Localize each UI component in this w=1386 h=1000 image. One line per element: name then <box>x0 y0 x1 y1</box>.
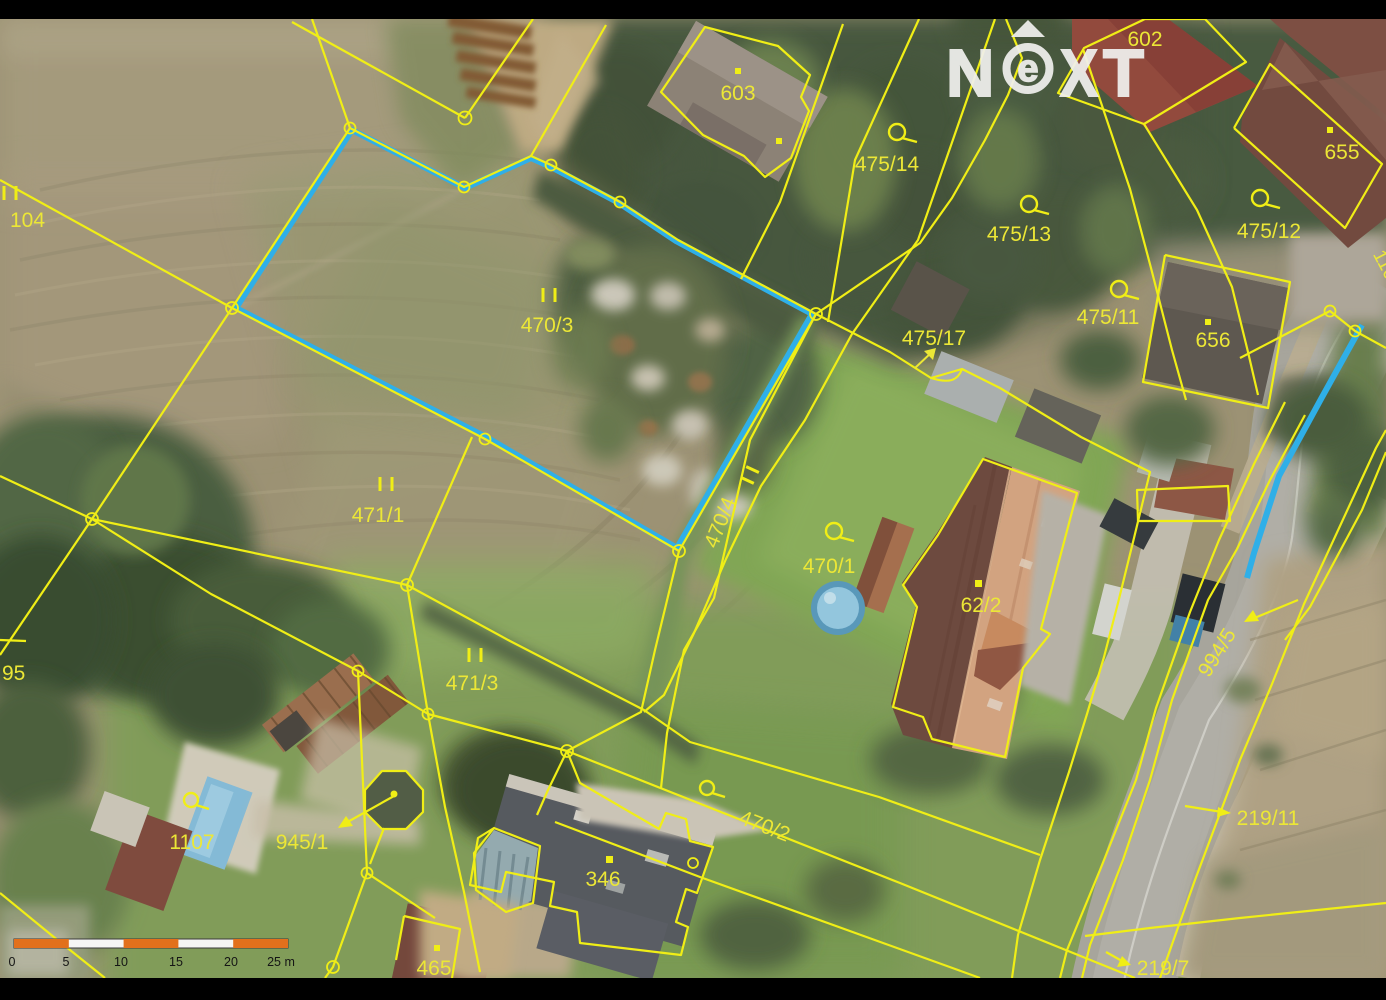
svg-text:20: 20 <box>224 955 238 969</box>
svg-text:25 m: 25 m <box>267 955 295 969</box>
svg-text:5: 5 <box>63 955 70 969</box>
svg-text:471/3: 471/3 <box>446 672 499 695</box>
svg-text:656: 656 <box>1195 329 1230 352</box>
svg-text:X: X <box>1060 37 1098 111</box>
svg-text:62/2: 62/2 <box>961 594 1002 617</box>
svg-text:603: 603 <box>720 82 755 105</box>
svg-text:219/7: 219/7 <box>1137 957 1190 980</box>
svg-text:104: 104 <box>10 209 45 232</box>
svg-text:475/14: 475/14 <box>855 153 920 176</box>
svg-text:655: 655 <box>1324 141 1359 164</box>
svg-text:470/1: 470/1 <box>803 555 856 578</box>
svg-text:945/1: 945/1 <box>276 831 329 854</box>
svg-text:T: T <box>1103 36 1144 111</box>
svg-text:95: 95 <box>2 662 25 685</box>
svg-text:15: 15 <box>169 955 183 969</box>
svg-text:0: 0 <box>9 955 16 969</box>
svg-text:219/11: 219/11 <box>1237 807 1300 830</box>
svg-text:475/11: 475/11 <box>1077 306 1140 329</box>
svg-text:N: N <box>946 36 994 111</box>
svg-text:465: 465 <box>416 957 451 980</box>
svg-text:470/3: 470/3 <box>521 314 574 337</box>
svg-text:475/12: 475/12 <box>1237 220 1301 243</box>
svg-text:e: e <box>1017 48 1038 90</box>
svg-text:475/17: 475/17 <box>902 327 966 350</box>
svg-text:475/13: 475/13 <box>987 223 1051 246</box>
svg-text:10: 10 <box>114 955 128 969</box>
svg-text:471/1: 471/1 <box>352 504 405 527</box>
svg-text:346: 346 <box>585 868 620 891</box>
svg-text:1107: 1107 <box>169 831 214 854</box>
